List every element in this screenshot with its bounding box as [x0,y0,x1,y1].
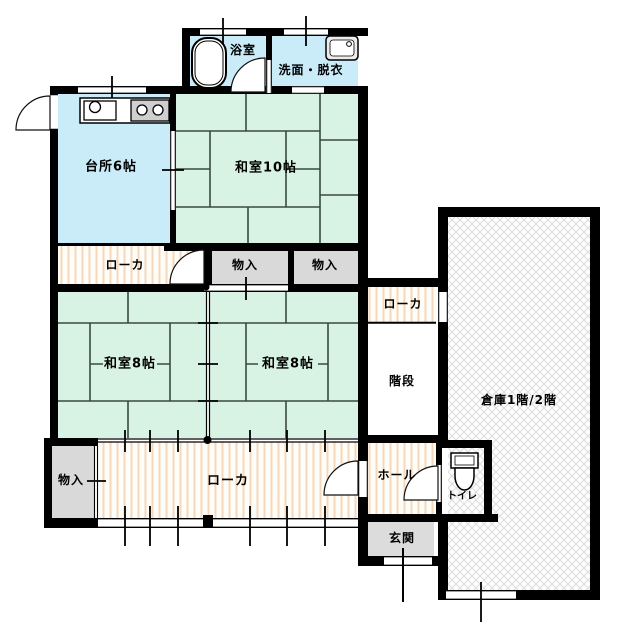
room-label-corridor-right: ローカ [383,298,422,310]
room-label-toilet: トイレ [447,492,477,502]
room-label-corridor-lower: ローカ [207,475,249,488]
room-label-japanese-room-8-left: 和室8帖 [104,358,156,371]
room-label-japanese-room-8-right: 和室8帖 [262,358,314,371]
room-label-warehouse: 倉庫1階/2階 [481,394,557,406]
stove-icon [131,100,169,121]
room-label-hall: ホール [377,469,416,481]
kitchen-sink-icon [84,101,116,120]
floorplan-canvas: 浴室 洗面・脱衣 台所6帖 和室10帖 ローカ 物入 物入 和室8帖 和室8帖 … [0,0,640,633]
washbasin-icon [326,36,358,60]
room-label-japanese-room-10: 和室10帖 [235,162,297,175]
room-label-corridor-upper: ローカ [105,259,144,271]
room-label-bath: 浴室 [230,44,256,56]
room-label-kitchen: 台所6帖 [85,161,137,174]
room-label-closet-upper-left: 物入 [232,259,258,271]
door-pivot-dot [203,284,210,291]
room-label-entrance: 玄関 [389,532,415,544]
room-label-washroom: 洗面・脱衣 [278,64,343,76]
room-label-closet-lower: 物入 [58,474,84,486]
room-label-stairs: 階段 [389,375,415,387]
kitchen-counter [80,98,170,123]
floorplan-drawing [0,0,640,633]
bathtub-icon [192,38,226,88]
room-label-closet-upper-right: 物入 [312,259,338,271]
